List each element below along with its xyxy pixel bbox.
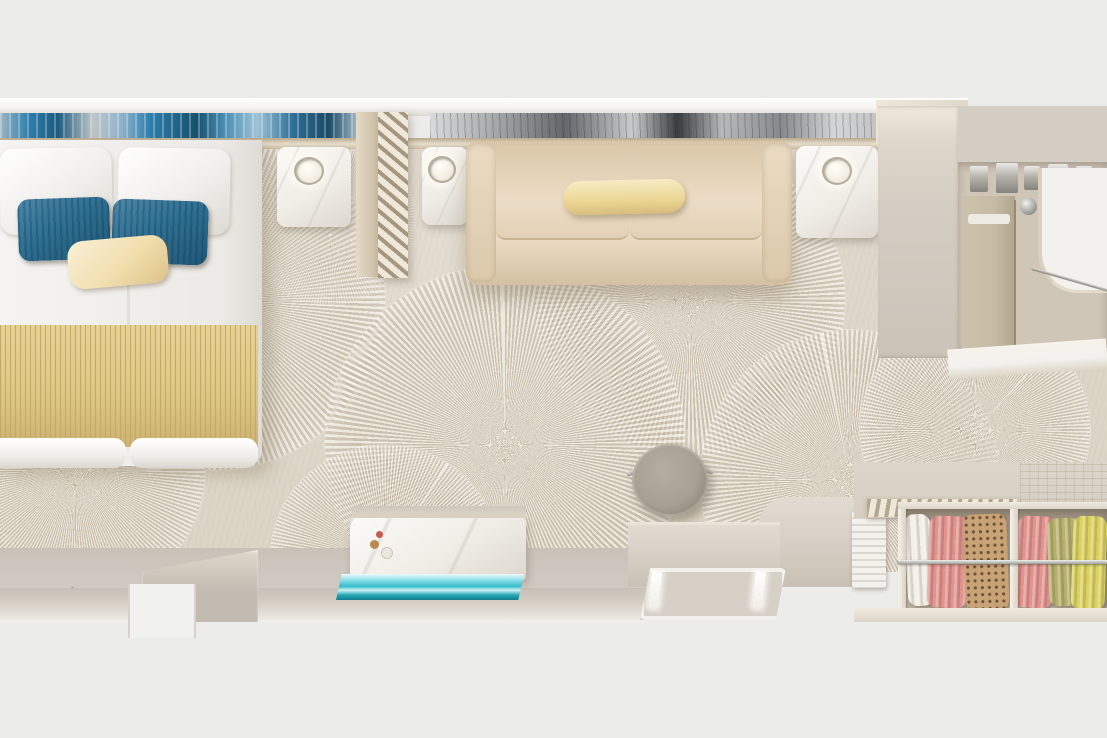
illuminated-luggage-tray [640, 568, 786, 620]
vanity-desk [350, 518, 526, 580]
stateroom-render [0, 0, 1107, 738]
bathroom-wall-top [958, 106, 1107, 163]
round-stool [632, 444, 708, 516]
silver-abstract-art-panel [430, 113, 880, 141]
bathroom [958, 162, 1107, 348]
bottom-wall [0, 588, 648, 622]
wardrobe-front-top-edge [898, 502, 1107, 509]
yellow-bolster-pillow [563, 178, 686, 215]
desk-decor-flower [376, 531, 383, 538]
cabinet-edge-line [1014, 200, 1016, 348]
table-lamp [294, 157, 324, 185]
bathroom-fixture [996, 163, 1018, 193]
turquoise-glass-bench [336, 574, 524, 600]
table-lamp [822, 157, 852, 185]
gold-bed-runner [0, 325, 258, 447]
vent-panel [852, 510, 886, 588]
cream-accent-pillow [66, 234, 170, 291]
blue-abstract-art-panel [0, 113, 357, 141]
tray-light-bar [752, 572, 766, 609]
slatted-divider-screen [378, 112, 408, 278]
bathroom-divider-wall [878, 106, 962, 358]
bed-foot-duvet [0, 438, 126, 468]
divider-screen-side [356, 112, 378, 277]
sofa-armrest [762, 144, 792, 282]
table-lamp [428, 156, 456, 183]
wardrobe-base [854, 608, 1107, 622]
vanity-handle-slot [968, 214, 1010, 224]
chrome-faucet-knob [1020, 198, 1037, 215]
tray-light-bar [648, 572, 662, 609]
desk-decor-gold [370, 540, 379, 549]
wardrobe-chrome-rail [898, 560, 1107, 564]
bed-foot-duvet [130, 438, 258, 468]
bathroom-fixture [970, 166, 988, 192]
entry-door-opening [128, 584, 196, 638]
sofa-armrest [466, 144, 496, 282]
desk-decor-vase [381, 547, 393, 559]
